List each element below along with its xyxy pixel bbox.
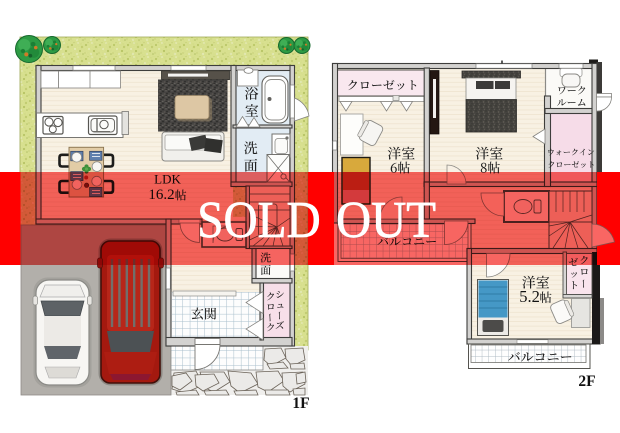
svg-text:5.2: 5.2 bbox=[519, 287, 540, 306]
svg-text:SOLD: SOLD bbox=[197, 191, 320, 248]
svg-text:1F: 1F bbox=[292, 395, 309, 412]
svg-text:2F: 2F bbox=[578, 373, 595, 390]
svg-text:OUT: OUT bbox=[336, 191, 436, 249]
